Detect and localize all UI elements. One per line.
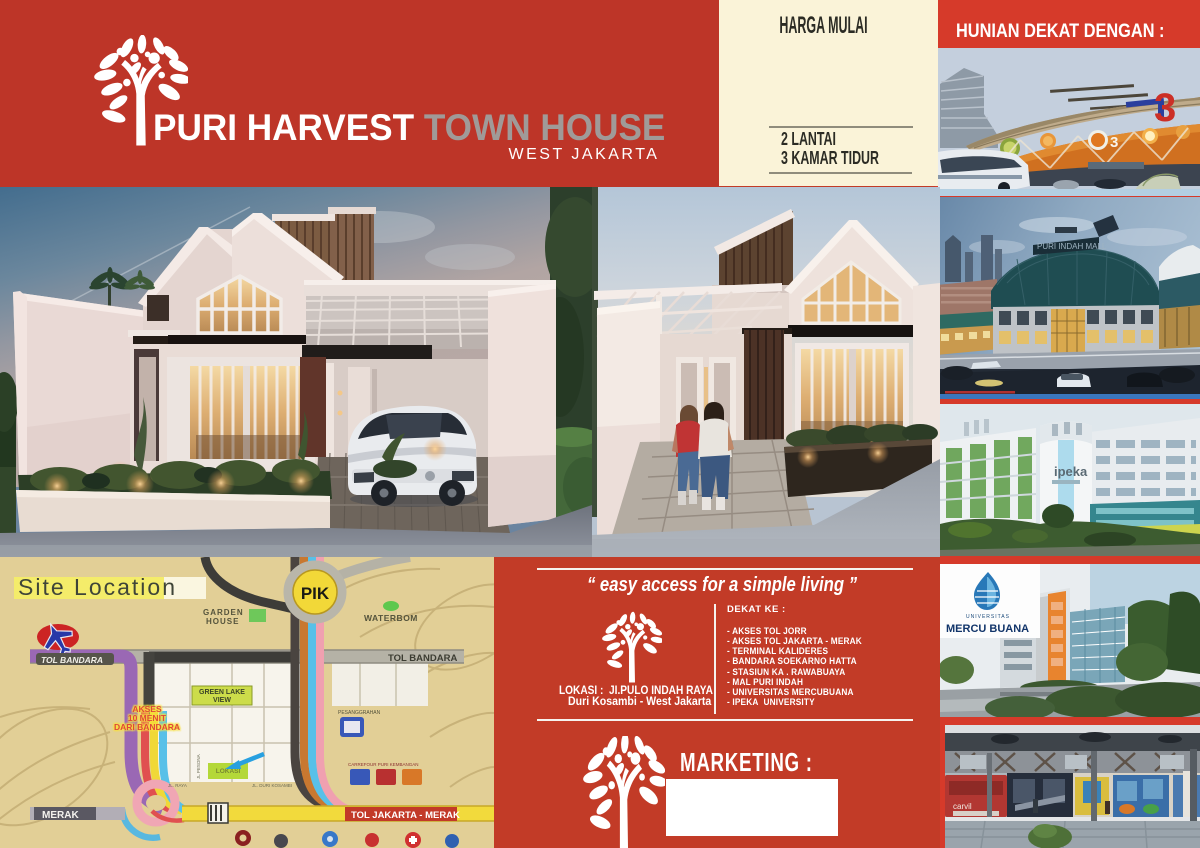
svg-text:HOUSE: HOUSE	[206, 617, 239, 626]
svg-text:3: 3	[1110, 134, 1118, 151]
svg-text:TOL BANDARA: TOL BANDARA	[41, 655, 103, 665]
svg-text:VIEW: VIEW	[213, 697, 231, 704]
svg-text:JL. DURI KOSAMBI: JL. DURI KOSAMBI	[252, 783, 292, 788]
svg-text:Site Location: Site Location	[18, 574, 177, 600]
svg-text:DARI BANDARA: DARI BANDARA	[114, 722, 180, 732]
svg-text:PESANGGRAHAN: PESANGGRAHAN	[338, 710, 381, 716]
svg-text:MERCU BUANA: MERCU BUANA	[946, 623, 1029, 635]
svg-text:CARREFOUR PURI KEMBANGAN: CARREFOUR PURI KEMBANGAN	[348, 762, 419, 767]
svg-text:carvil: carvil	[953, 802, 972, 811]
svg-text:UNIVERSITAS: UNIVERSITAS	[966, 614, 1010, 620]
svg-text:TOL JAKARTA - MERAK: TOL JAKARTA - MERAK	[351, 810, 460, 821]
svg-text:JL. RAYA: JL. RAYA	[168, 783, 187, 788]
svg-text:GARDEN: GARDEN	[203, 608, 244, 617]
svg-text:PIK: PIK	[301, 584, 330, 603]
svg-text:LOKASI: LOKASI	[216, 768, 241, 775]
svg-text:TOL BANDARA: TOL BANDARA	[388, 653, 457, 664]
svg-text:3: 3	[1154, 86, 1176, 130]
svg-text:PURI INDAH MALL: PURI INDAH MALL	[1037, 242, 1107, 251]
svg-text:GREEN LAKE: GREEN LAKE	[199, 689, 245, 696]
svg-text:WATERBOM: WATERBOM	[364, 613, 418, 623]
svg-text:ipeka: ipeka	[1054, 464, 1088, 479]
svg-text:JL PESONA: JL PESONA	[196, 754, 201, 779]
svg-text:MERAK: MERAK	[42, 810, 79, 821]
